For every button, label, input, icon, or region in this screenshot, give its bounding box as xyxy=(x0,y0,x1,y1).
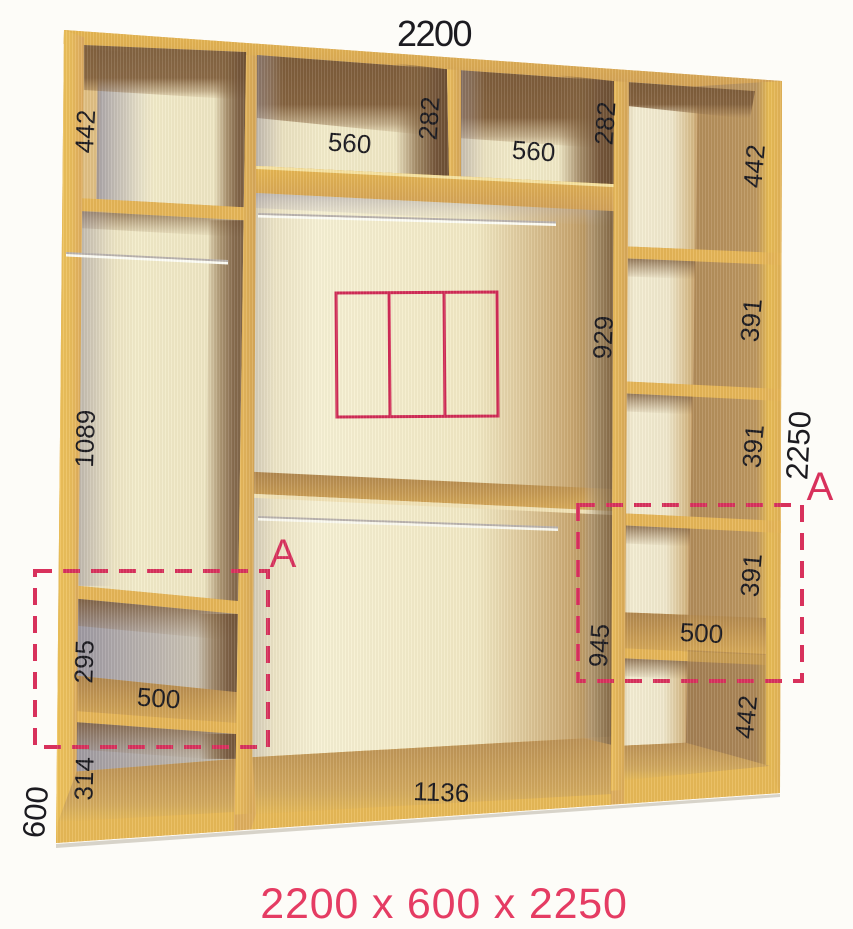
svg-text:2200 x 600 x 2250: 2200 x 600 x 2250 xyxy=(260,880,627,928)
svg-text:600: 600 xyxy=(16,785,55,840)
svg-text:2200: 2200 xyxy=(397,13,472,54)
svg-text:2250: 2250 xyxy=(779,410,818,481)
